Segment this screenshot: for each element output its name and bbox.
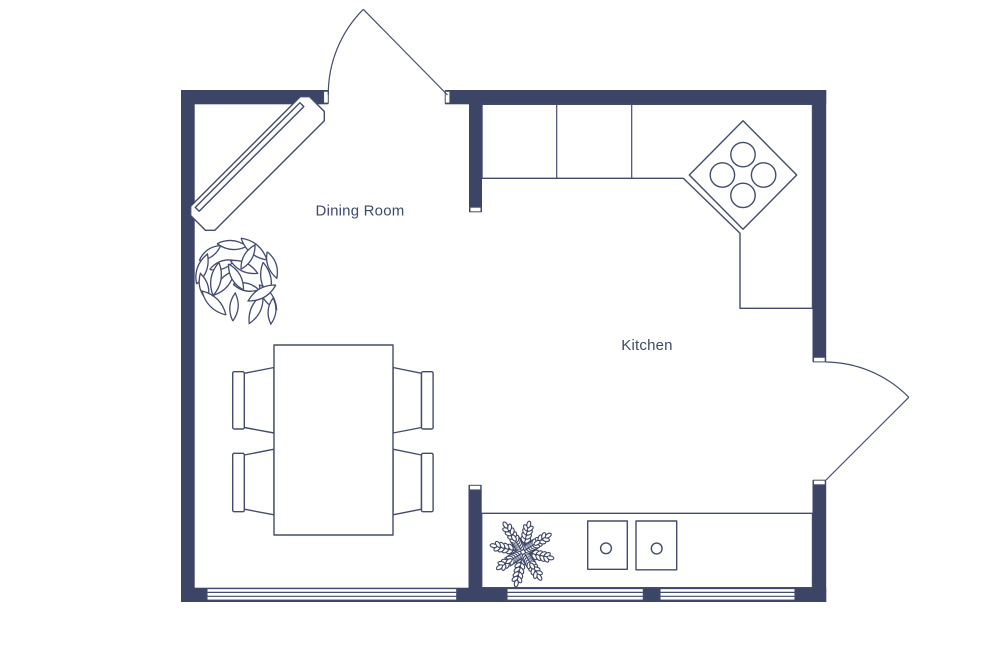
sideboard [186,92,329,235]
burner [710,163,734,187]
window-kitchen-right [660,589,795,601]
chair [393,368,433,434]
window-kitchen-left [507,589,643,601]
room-label-dining: Dining Room [316,203,405,220]
leaf [229,293,240,322]
door-leaf [826,397,909,480]
chair [233,368,274,434]
jamb-cap [470,485,481,490]
jamb-cap [324,91,329,103]
chair-seat [244,449,274,515]
chair-back [422,453,434,511]
drain [601,543,612,554]
door-swing-arc [826,362,909,397]
chair-seat [393,368,422,434]
dining-set [233,345,433,535]
sink-unit-left [588,521,628,569]
window-dining [207,589,457,601]
door-swing-arc [328,9,363,95]
chair-back [233,372,245,429]
chair-seat [244,368,274,434]
chair-back [422,372,434,429]
side-door [826,362,909,480]
entry-door [328,9,447,95]
door-leaf [363,9,447,95]
room-label-kitchen: Kitchen [621,337,672,354]
sink-unit-right [636,521,677,570]
chair [233,449,274,515]
burner [751,163,775,187]
chair [393,449,433,515]
wall-left [181,90,195,602]
floor-plan: Dining Room Kitchen [0,0,1000,667]
wall-divider-top [469,104,482,212]
dining-table [274,345,393,535]
chair-back [233,453,245,511]
chair-seat [393,449,422,515]
drain [651,543,662,554]
jamb-cap [470,207,481,212]
potted-plant-dining [192,234,281,325]
wall-divider-bottom [469,485,482,602]
jamb-cap [814,357,826,362]
wall-right-upper [813,90,827,362]
jamb-cap [814,480,826,485]
burner [731,142,755,166]
wall-right-lower [813,480,827,602]
burner [731,183,755,207]
wall-top-right [445,90,826,104]
